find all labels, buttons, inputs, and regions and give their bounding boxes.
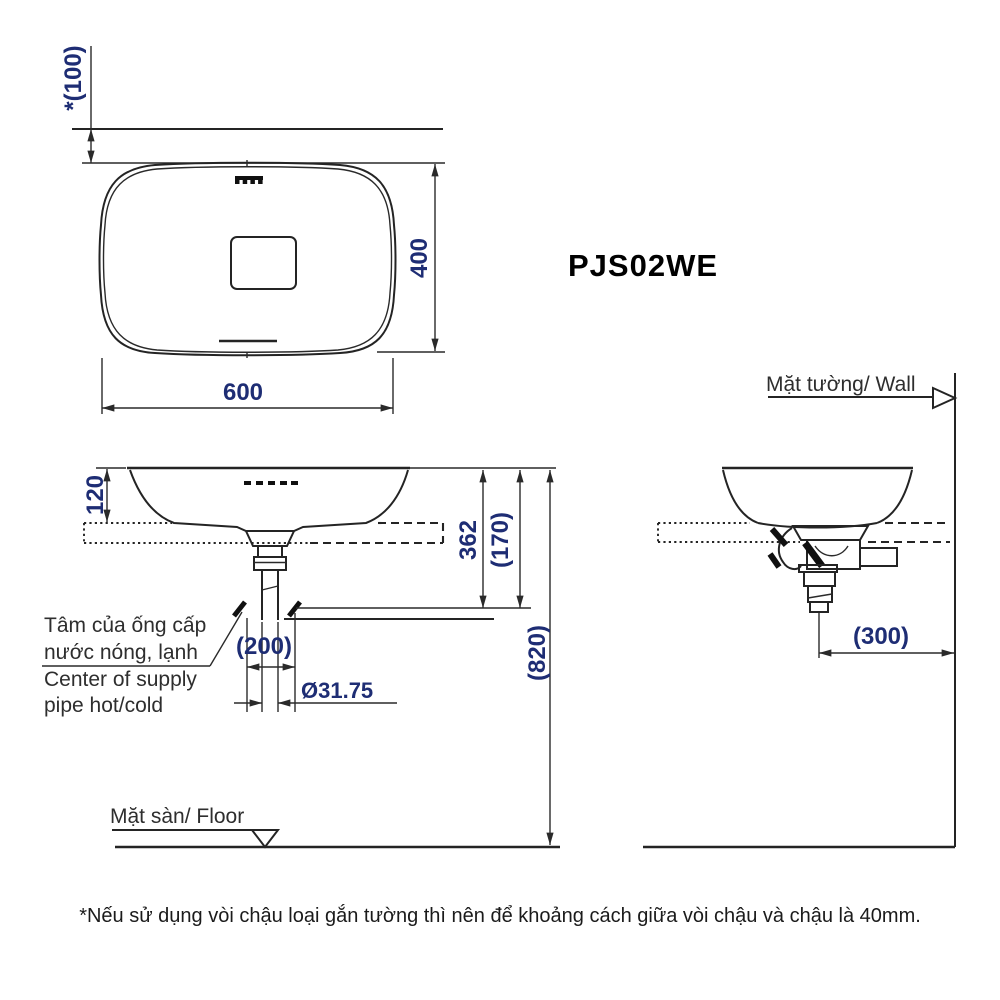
supply-callout-line4: pipe hot/cold [44, 694, 163, 717]
dim-wall-offset: *(100) [60, 45, 87, 110]
supply-callout-line3: Center of supply [44, 668, 197, 691]
floor-level-triangle [252, 830, 278, 847]
dim-wall-distance-300: (300) [853, 623, 909, 650]
dim-drain-diameter: Ø31.75 [301, 678, 373, 703]
bowl-outline [130, 470, 408, 531]
dim-floor-height-820: (820) [524, 625, 551, 681]
supply-center-mark-left [234, 602, 245, 616]
wall-level-triangle [933, 388, 955, 408]
model-number: PJS02WE [568, 248, 718, 283]
dim-width-600: 600 [223, 379, 263, 406]
fitting-mark-3 [770, 554, 779, 567]
tailpipe-joint-line [262, 586, 278, 590]
drain-collar [254, 557, 286, 570]
basin-outer-outline [100, 163, 396, 356]
dim-supply-depth-170: (170) [487, 512, 514, 568]
dim-drain-depth-362: 362 [455, 520, 482, 560]
dim-depth-400: 400 [406, 238, 433, 278]
footnote: *Nếu sử dụng vòi chậu loại gắn tường thì… [79, 904, 921, 927]
installation-drawing-page: PJS02WE *(100) 600 400 120 362 (170) (82… [0, 0, 1000, 1000]
dim-rim-height-120: 120 [82, 475, 109, 515]
side-bowl-left [723, 470, 758, 523]
side-tailpipe-tip [810, 602, 828, 612]
supply-callout-line1: Tâm của ống cấp [44, 614, 206, 637]
faucet-hole-mark [235, 176, 263, 184]
side-view [643, 373, 955, 847]
dim-supply-spacing-200: (200) [236, 633, 292, 660]
side-tailpipe-joint [808, 594, 832, 598]
floor-label: Mặt sàn/ Floor [110, 805, 244, 828]
side-drain-nut [804, 572, 835, 586]
wall-label: Mặt tường/ Wall [766, 373, 916, 396]
top-view [72, 46, 445, 414]
basin-inner-outline [104, 167, 392, 353]
drain-opening-square [231, 237, 296, 289]
supply-callout-line2: nước nóng, lạnh [44, 641, 198, 664]
side-bowl-right [877, 470, 912, 523]
side-drain-outlet [860, 548, 897, 566]
technical-drawing: PJS02WE *(100) 600 400 120 362 (170) (82… [0, 0, 1000, 1000]
side-drain-body-curve [815, 546, 848, 556]
faucet-holes-dashes [244, 481, 298, 485]
